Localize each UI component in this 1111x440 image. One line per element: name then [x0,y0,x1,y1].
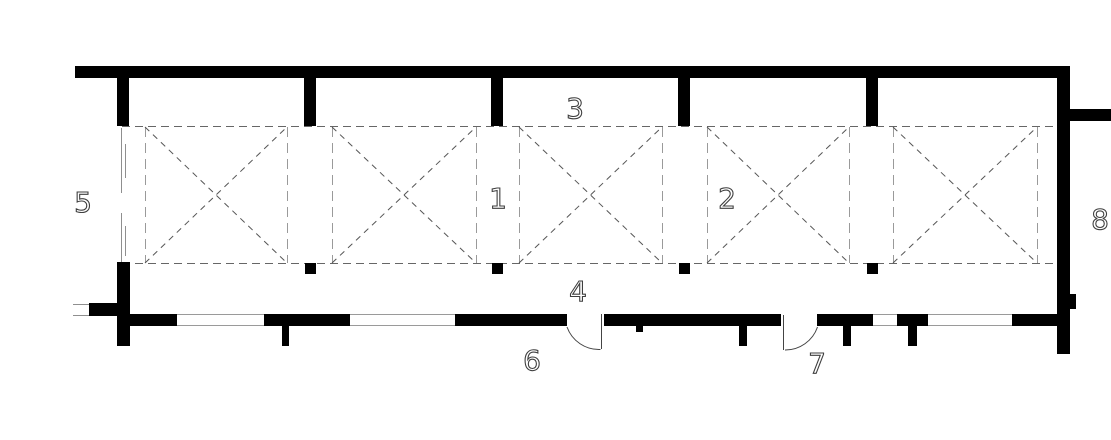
left-bottom-pier [117,262,130,346]
label-5: 5 [74,186,92,219]
column-4 [867,263,878,274]
crossed-box-3 [519,127,663,263]
label-6: 6 [523,344,541,377]
grid-layer [122,127,1057,264]
crossed-box-2 [332,127,477,263]
wall-tick-3 [739,326,747,346]
right-wall [1057,66,1070,354]
bottom-wall-seg-7 [1012,314,1057,326]
label-1: 1 [489,182,507,215]
right-wing-stub [1070,109,1111,121]
bottom-wall-seg-4 [604,314,781,326]
bottom-wall-seg-1 [129,314,177,326]
wall-tick-1 [282,326,289,346]
top-pier-4 [678,78,690,126]
label-8: 8 [1091,203,1109,236]
floor-plan: 1 2 3 4 5 6 7 8 [40,16,1111,424]
wall-tick-4 [843,326,851,346]
label-4: 4 [569,275,587,308]
bottom-wall-seg-3 [455,314,567,326]
top-pier-1 [117,78,129,126]
label-3: 3 [566,92,584,125]
right-wall-nub [1070,294,1076,309]
label-7: 7 [808,347,826,380]
top-wall [75,66,1070,78]
label-2: 2 [718,182,736,215]
bottom-wall-seg-2 [264,314,350,326]
crossed-box-5 [893,127,1038,263]
windows-layer [73,128,1012,326]
wall-tick-5 [908,326,917,346]
crossed-boxes-layer [145,127,1038,263]
walls-layer [75,66,1111,354]
bottom-wall-seg-6 [897,314,928,326]
column-3 [679,263,690,274]
floor-plan-canvas: 1 2 3 4 5 6 7 8 [40,16,1111,424]
wall-tick-2 [636,326,643,332]
top-pier-5 [866,78,878,126]
door-1-swing-arc [567,327,601,350]
top-pier-3 [491,78,503,126]
column-2 [492,263,503,274]
top-pier-2 [304,78,316,126]
bottom-wall-seg-5 [817,314,873,326]
labels-layer: 1 2 3 4 5 6 7 8 [74,92,1109,380]
column-1 [305,263,316,274]
crossed-box-1 [145,127,288,263]
left-wall-stub [89,303,117,316]
